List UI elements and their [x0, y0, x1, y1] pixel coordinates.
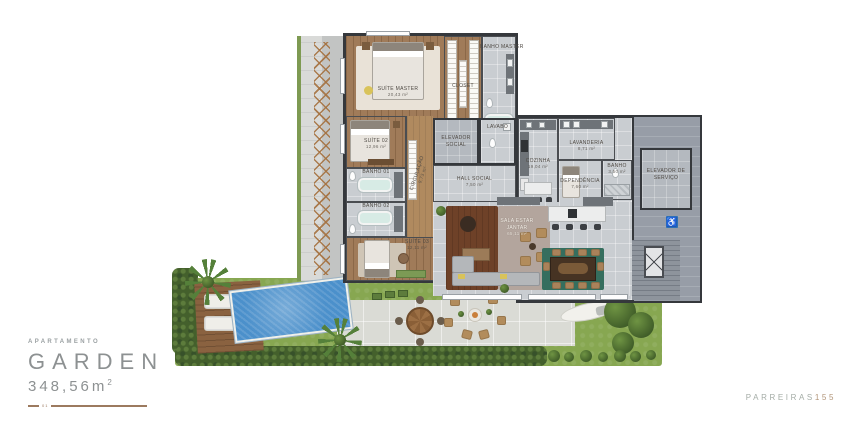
garden-shrub: [646, 350, 656, 360]
dining-chair: [565, 249, 574, 256]
dryer: [573, 121, 580, 128]
room-label-cozinha: COZINHA 19,04 m²: [518, 158, 558, 170]
bathtub: [358, 211, 392, 225]
room-label-banho-02: BANHO 02: [346, 203, 406, 209]
garden-shrub: [598, 352, 608, 362]
room-label-elevador-servico: ELEVADOR DE SERVIÇO: [640, 168, 692, 181]
nightstand: [393, 121, 400, 128]
sofa: [452, 272, 540, 286]
garden-pouf: [486, 309, 492, 315]
sofa-pillow: [500, 274, 507, 279]
room-label-banho-servico: BANHO 3,50 m²: [602, 163, 632, 175]
title-rule: 01: [28, 403, 178, 408]
wicker-armchair: [497, 316, 506, 325]
dining-chair: [578, 282, 587, 289]
bath-sink: [507, 78, 513, 86]
planter-box: [385, 291, 395, 298]
garden-shrub: [580, 350, 592, 362]
suite-03-bed: [364, 240, 390, 278]
dining-chair: [591, 249, 600, 256]
washer: [563, 121, 570, 128]
room-label-banho-01: BANHO 01: [346, 169, 406, 175]
kitchen-island: [524, 182, 552, 195]
garden-shrub: [564, 352, 574, 362]
round-side-table: [460, 216, 476, 232]
toilet: [349, 224, 356, 234]
shower: [604, 184, 630, 196]
accessibility-icon: ♿: [666, 216, 678, 228]
terrace-pavers: [337, 300, 575, 346]
stair-shaft: [644, 246, 664, 278]
outdoor-chair: [416, 338, 424, 346]
room-label-suite-master: SUÍTE MASTER 20,43 m²: [360, 86, 436, 98]
apartment-area: 348,56m2: [28, 378, 178, 395]
room-label-lavanderia: LAVANDERIA 8,71 m²: [558, 140, 615, 152]
dining-island: [548, 206, 606, 222]
garden-pouf: [458, 311, 464, 317]
garden-tree: [628, 312, 654, 338]
apartment-type-label: APARTAMENTO: [28, 339, 178, 345]
facade-window: [340, 58, 345, 94]
palm-tree-core: [202, 276, 214, 288]
dining-chair: [597, 262, 604, 271]
living-sideboard: [583, 197, 613, 206]
outdoor-round-table: [406, 307, 434, 335]
dining-chair: [578, 249, 587, 256]
nightstand: [426, 42, 434, 50]
island-stool: [580, 224, 587, 230]
title-block: APARTAMENTO GARDEN 348,56m2 01: [28, 339, 178, 408]
dining-chair: [565, 282, 574, 289]
side-table: [529, 243, 536, 250]
dining-chair: [552, 249, 561, 256]
living-sideboard: [497, 197, 540, 205]
rule-dash: [28, 405, 39, 407]
armchair: [398, 253, 409, 264]
brand-name: PARREIRAS: [746, 393, 815, 402]
unit-marker: 01: [42, 403, 48, 408]
laundry-sink: [601, 121, 608, 128]
island-cooktop: [568, 209, 577, 218]
glass-door: [528, 294, 596, 300]
outdoor-chair: [416, 296, 424, 304]
sofa-pillow: [458, 274, 465, 279]
walkway-green-edge: [297, 36, 301, 281]
room-label-banho-master: BANHO MASTER: [480, 44, 518, 50]
island-stool: [594, 224, 601, 230]
kitchen-sink: [526, 122, 532, 128]
bath-counter: [394, 172, 403, 198]
table-runner: [558, 263, 588, 274]
dining-chair: [591, 282, 600, 289]
indoor-plant: [436, 206, 446, 216]
toilet: [486, 98, 493, 108]
room-label-suite-03: SUÍTE 03 12,11 m²: [392, 239, 442, 251]
dining-chair: [552, 282, 561, 289]
room-label-elevador-social: ELEVADOR SOCIAL: [433, 135, 479, 148]
glass-door: [442, 294, 522, 300]
dining-chair: [543, 262, 550, 271]
facade-window: [340, 244, 345, 274]
rule-line: [51, 405, 147, 407]
garden-shrub: [614, 350, 626, 362]
island-stool: [566, 224, 573, 230]
facade-window: [366, 31, 410, 36]
bath-sink: [507, 59, 513, 67]
bath-counter: [394, 206, 403, 232]
planter-box: [398, 290, 408, 297]
dresser: [368, 159, 394, 165]
living-armchair: [520, 256, 531, 266]
kitchen-sink: [539, 122, 545, 128]
apartment-name: GARDEN: [28, 349, 178, 375]
room-label-suite-02: SUÍTE 02 12,96 m²: [346, 138, 406, 150]
fire-pit-flame: [472, 312, 478, 318]
palm-tree-core: [334, 334, 346, 346]
brand-logo: PARREIRAS155: [746, 393, 836, 402]
floorplan-canvas: SUÍTE MASTER 20,43 m² CLOSET BANHO MASTE…: [0, 0, 854, 427]
plant-bench: [396, 270, 426, 278]
walkway-planting-trellis: [314, 42, 330, 275]
cooktop: [521, 140, 528, 152]
room-label-sala: SALA ESTAR JANTAR 65,11 m²: [492, 218, 542, 237]
nightstand: [362, 42, 370, 50]
wicker-armchair: [444, 318, 453, 327]
room-label-hall-social: HALL SOCIAL 7,50 m²: [433, 176, 516, 188]
room-label-closet: CLOSET: [444, 83, 482, 89]
brand-number: 155: [815, 393, 836, 402]
planter-box: [372, 293, 382, 300]
sofa-chaise: [452, 256, 474, 273]
garden-shrub: [548, 350, 560, 362]
glass-door: [600, 294, 628, 300]
island-stool: [552, 224, 559, 230]
indoor-plant: [500, 284, 509, 293]
toilet: [489, 138, 496, 148]
room-label-lavabo: LAVABO: [479, 124, 516, 130]
bathtub: [358, 178, 392, 192]
room-label-dependencia: DEPENDÊNCIA 7,60 m²: [556, 178, 604, 190]
facade-window: [340, 124, 345, 154]
outdoor-chair: [395, 317, 403, 325]
garden-shrub: [630, 351, 641, 362]
